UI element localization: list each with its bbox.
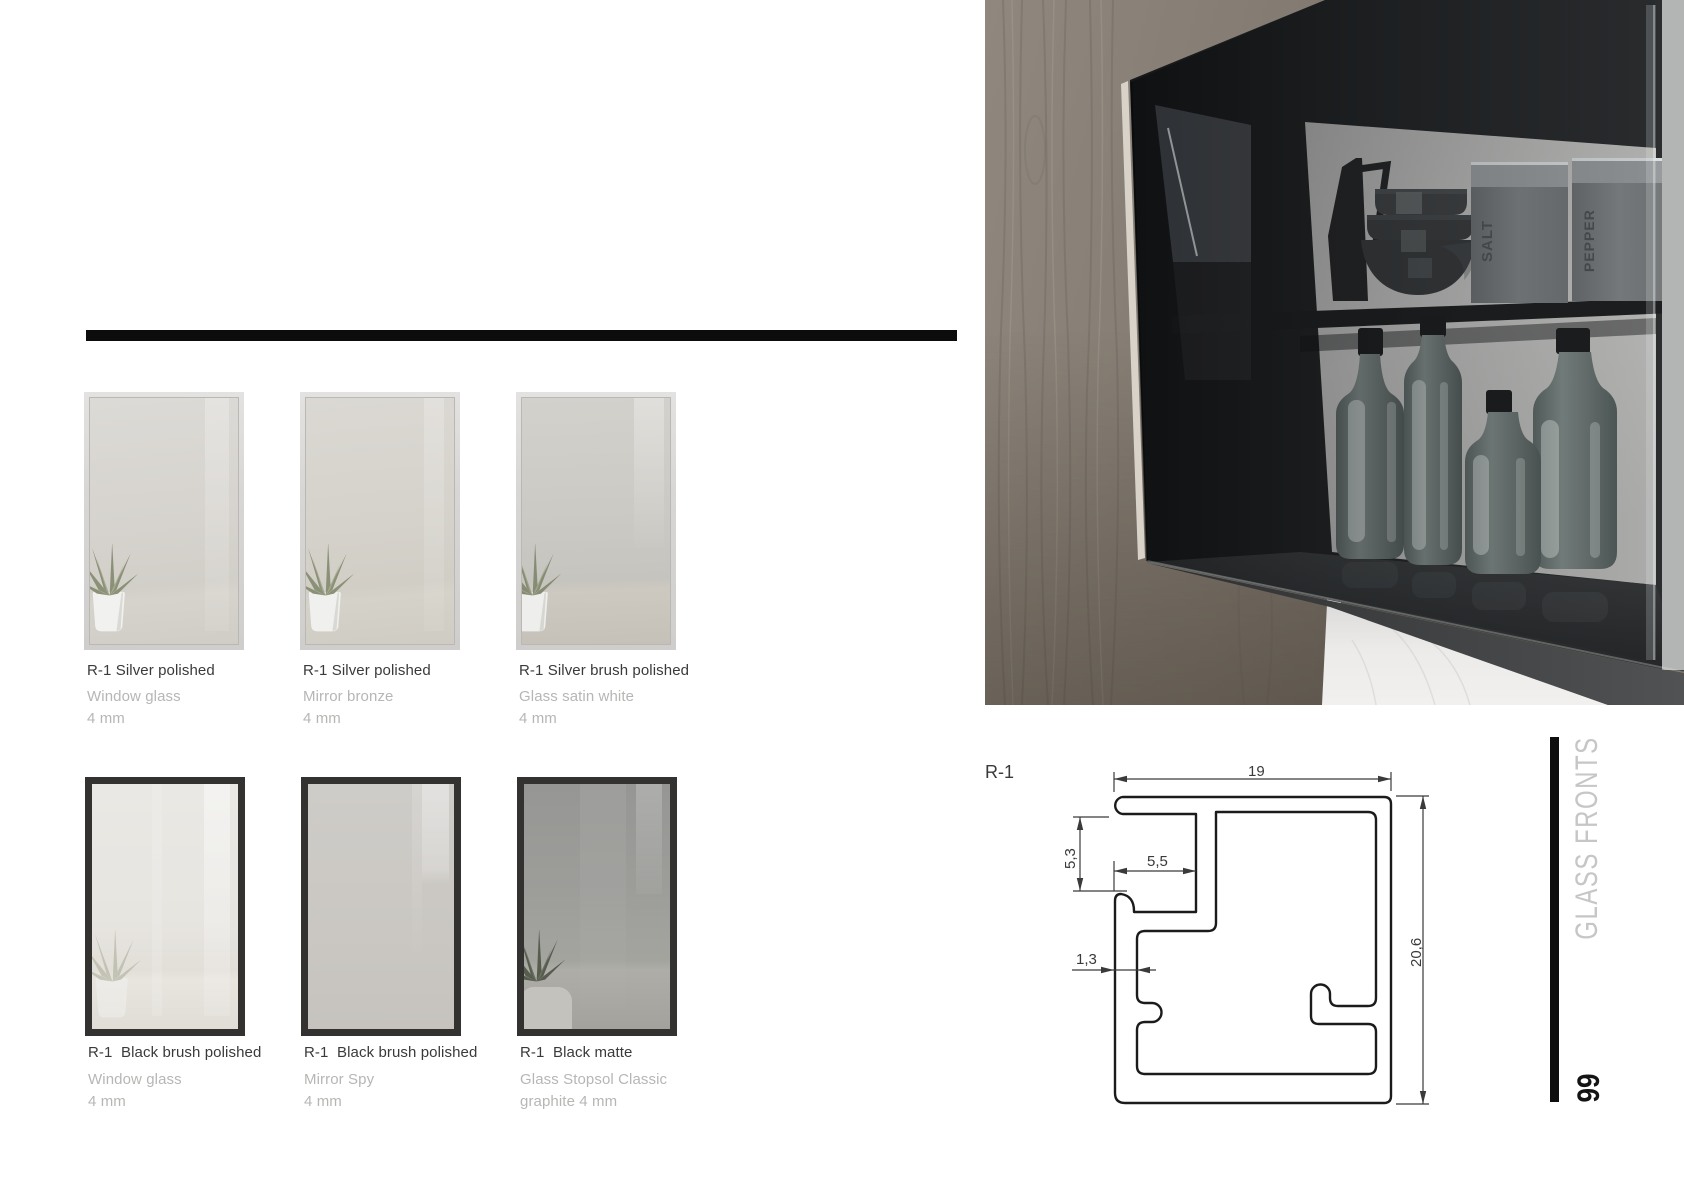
svg-text:19: 19 xyxy=(1248,763,1265,780)
svg-text:5,5: 5,5 xyxy=(1147,853,1168,870)
svg-text:20,6: 20,6 xyxy=(1408,938,1425,967)
svg-text:R-1: R-1 xyxy=(985,762,1014,782)
svg-text:5,3: 5,3 xyxy=(1062,848,1079,869)
svg-text:1,3: 1,3 xyxy=(1076,951,1097,968)
